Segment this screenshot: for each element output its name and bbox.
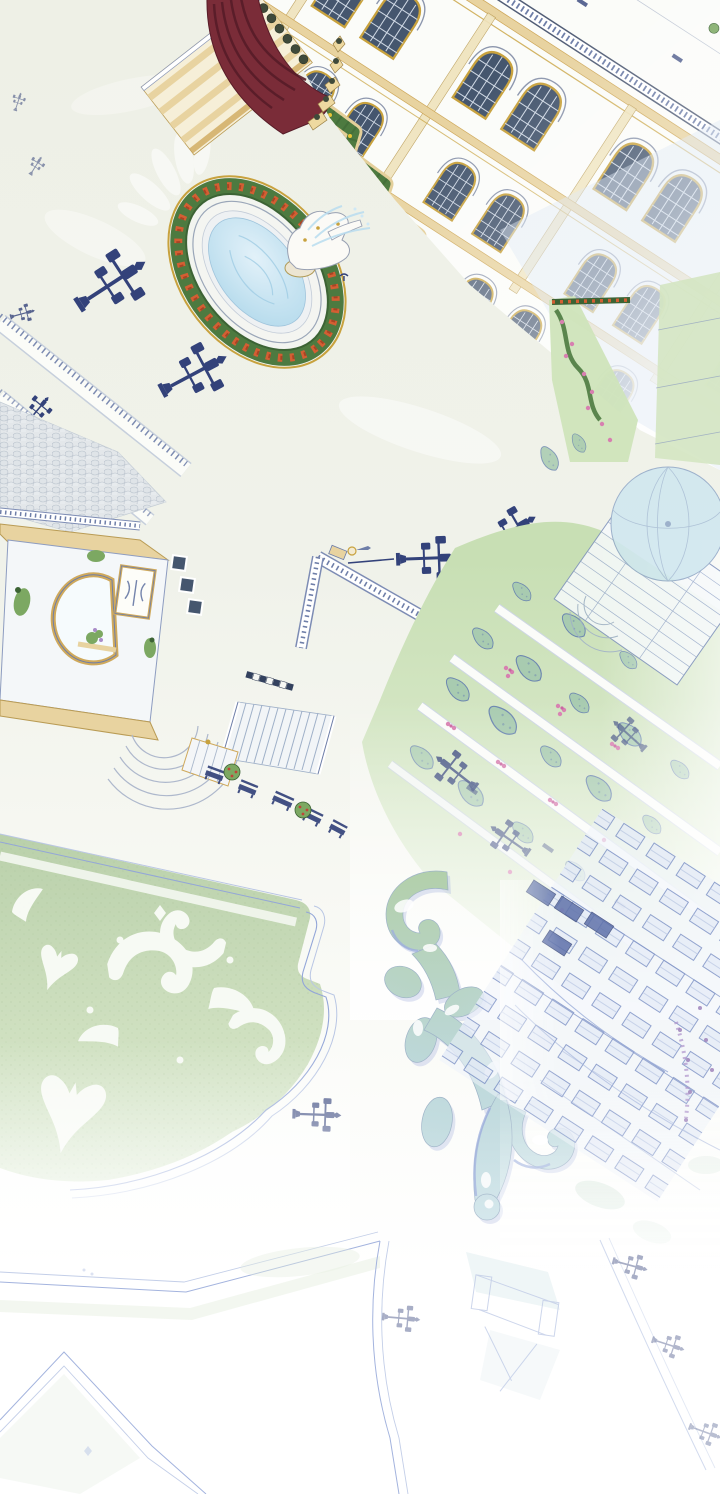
garden-illustration <box>0 0 720 1494</box>
gate-window <box>115 566 155 618</box>
illustration-canvas <box>0 0 720 1494</box>
